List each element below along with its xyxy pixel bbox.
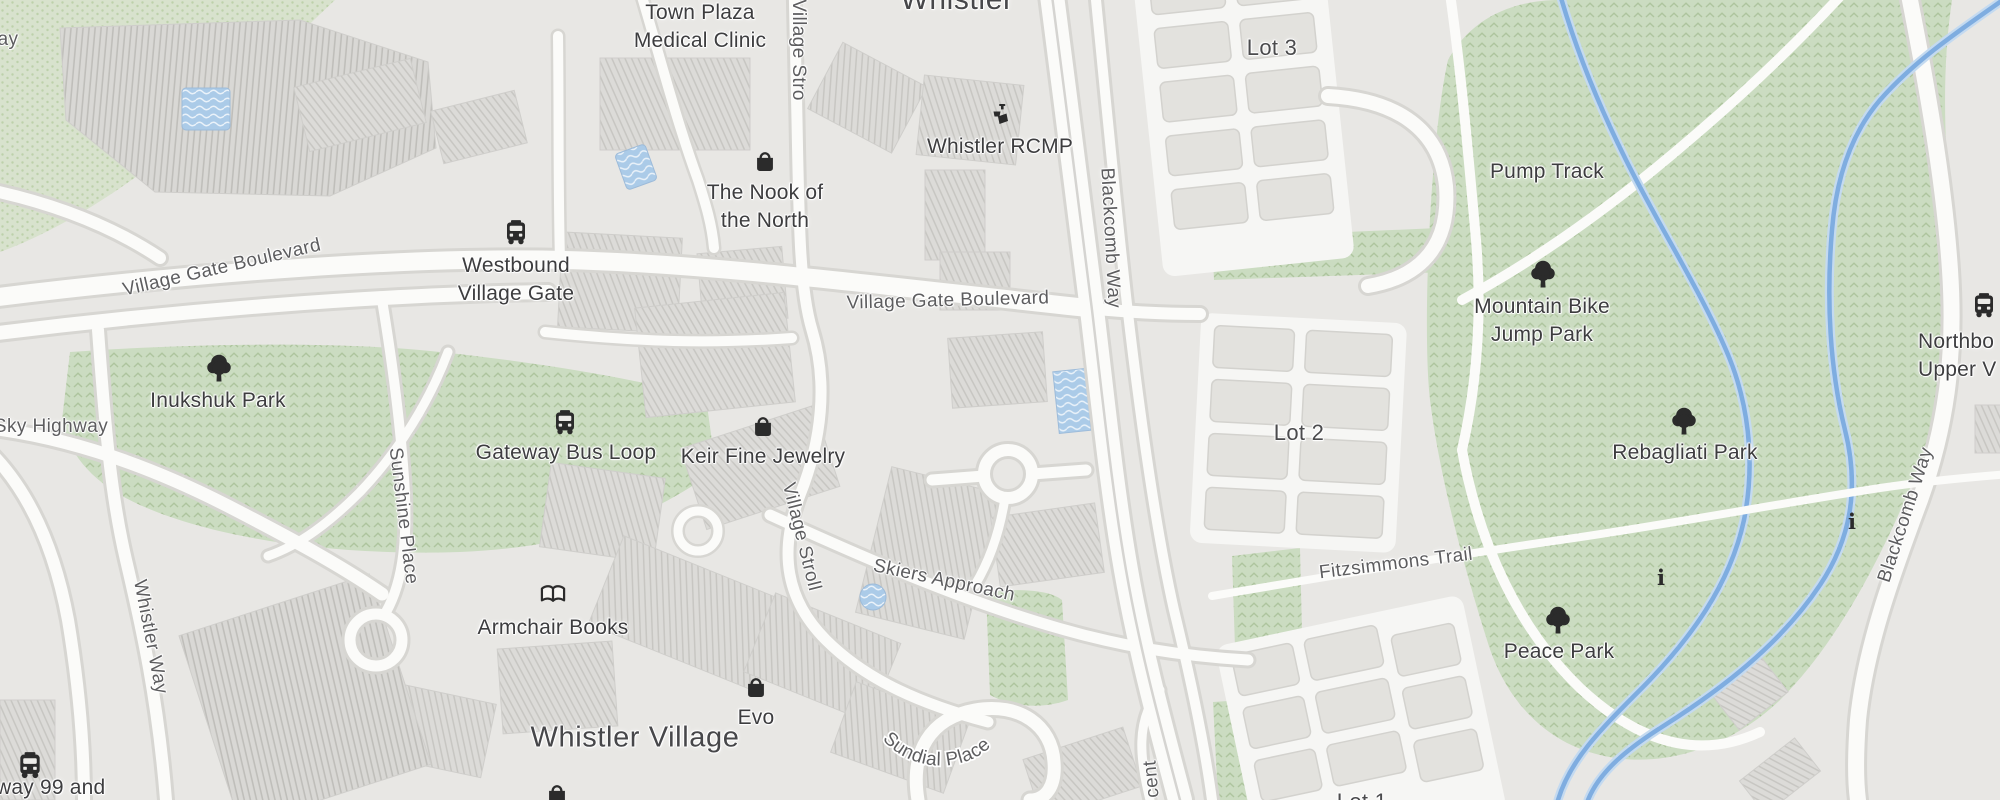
poi-label-mountain-bike-jump-park[interactable]: Mountain Bike Jump Park xyxy=(1474,293,1610,349)
city-label-whistler: Whistler xyxy=(900,0,1013,17)
street-label-partial-ay: ay xyxy=(0,29,18,51)
tree-icon[interactable] xyxy=(204,354,234,384)
shopping-bag-icon[interactable] xyxy=(545,783,570,800)
poi-label-nook-of-the-north[interactable]: The Nook of the North xyxy=(707,179,824,235)
poi-label-northbound-upper-village[interactable]: Northbo Upper V xyxy=(1918,328,1996,384)
poi-label-keir-fine-jewelry[interactable]: Keir Fine Jewelry xyxy=(681,443,845,471)
shopping-bag-icon[interactable] xyxy=(751,415,776,440)
shopping-bag-icon[interactable] xyxy=(753,150,778,175)
tree-icon[interactable] xyxy=(1669,407,1699,437)
poi-label-whistler-rcmp[interactable]: Whistler RCMP xyxy=(927,133,1073,161)
police-officer-icon[interactable] xyxy=(985,100,1015,130)
poi-label-town-plaza-medical-clinic[interactable]: Town Plaza Medical Clinic xyxy=(634,0,766,55)
street-label-crescent-partial: cent xyxy=(1139,759,1164,798)
poi-label-westbound-village-gate[interactable]: Westbound Village Gate xyxy=(458,252,574,308)
bus-icon[interactable] xyxy=(552,410,579,437)
info-icon[interactable] xyxy=(1841,510,1863,532)
poi-label-rebagliati-park[interactable]: Rebagliati Park xyxy=(1612,439,1757,467)
street-label-village-stroll-north: Village Stro xyxy=(787,0,809,101)
lot1-label: Lot 1 xyxy=(1337,789,1387,800)
poi-label-peace-park[interactable]: Peace Park xyxy=(1504,638,1615,666)
street-label-sky-highway: Sky Highway xyxy=(0,416,108,438)
poi-label-evo[interactable]: Evo xyxy=(738,704,775,732)
open-book-icon[interactable] xyxy=(539,581,567,609)
tree-icon[interactable] xyxy=(1528,260,1558,290)
lot2-label: Lot 2 xyxy=(1274,420,1324,446)
tree-icon[interactable] xyxy=(1543,606,1573,636)
poi-label-inukshuk-park[interactable]: Inukshuk Park xyxy=(150,387,286,415)
poi-label-pump-track[interactable]: Pump Track xyxy=(1490,158,1604,186)
poi-label-gateway-bus-loop[interactable]: Gateway Bus Loop xyxy=(476,439,657,467)
city-label-whistler-village: Whistler Village xyxy=(531,722,740,755)
pool xyxy=(182,88,230,130)
poi-label-highway-99-stop[interactable]: way 99 and xyxy=(0,774,105,800)
map-viewport[interactable]: i xyxy=(0,0,2000,800)
info-icon[interactable] xyxy=(1650,566,1672,588)
bus-icon[interactable] xyxy=(503,220,530,247)
lot3-label: Lot 3 xyxy=(1247,35,1297,61)
poi-label-armchair-books[interactable]: Armchair Books xyxy=(477,614,628,642)
shopping-bag-icon[interactable] xyxy=(744,676,769,701)
bus-icon[interactable] xyxy=(1971,293,1998,320)
fountain xyxy=(860,584,886,610)
